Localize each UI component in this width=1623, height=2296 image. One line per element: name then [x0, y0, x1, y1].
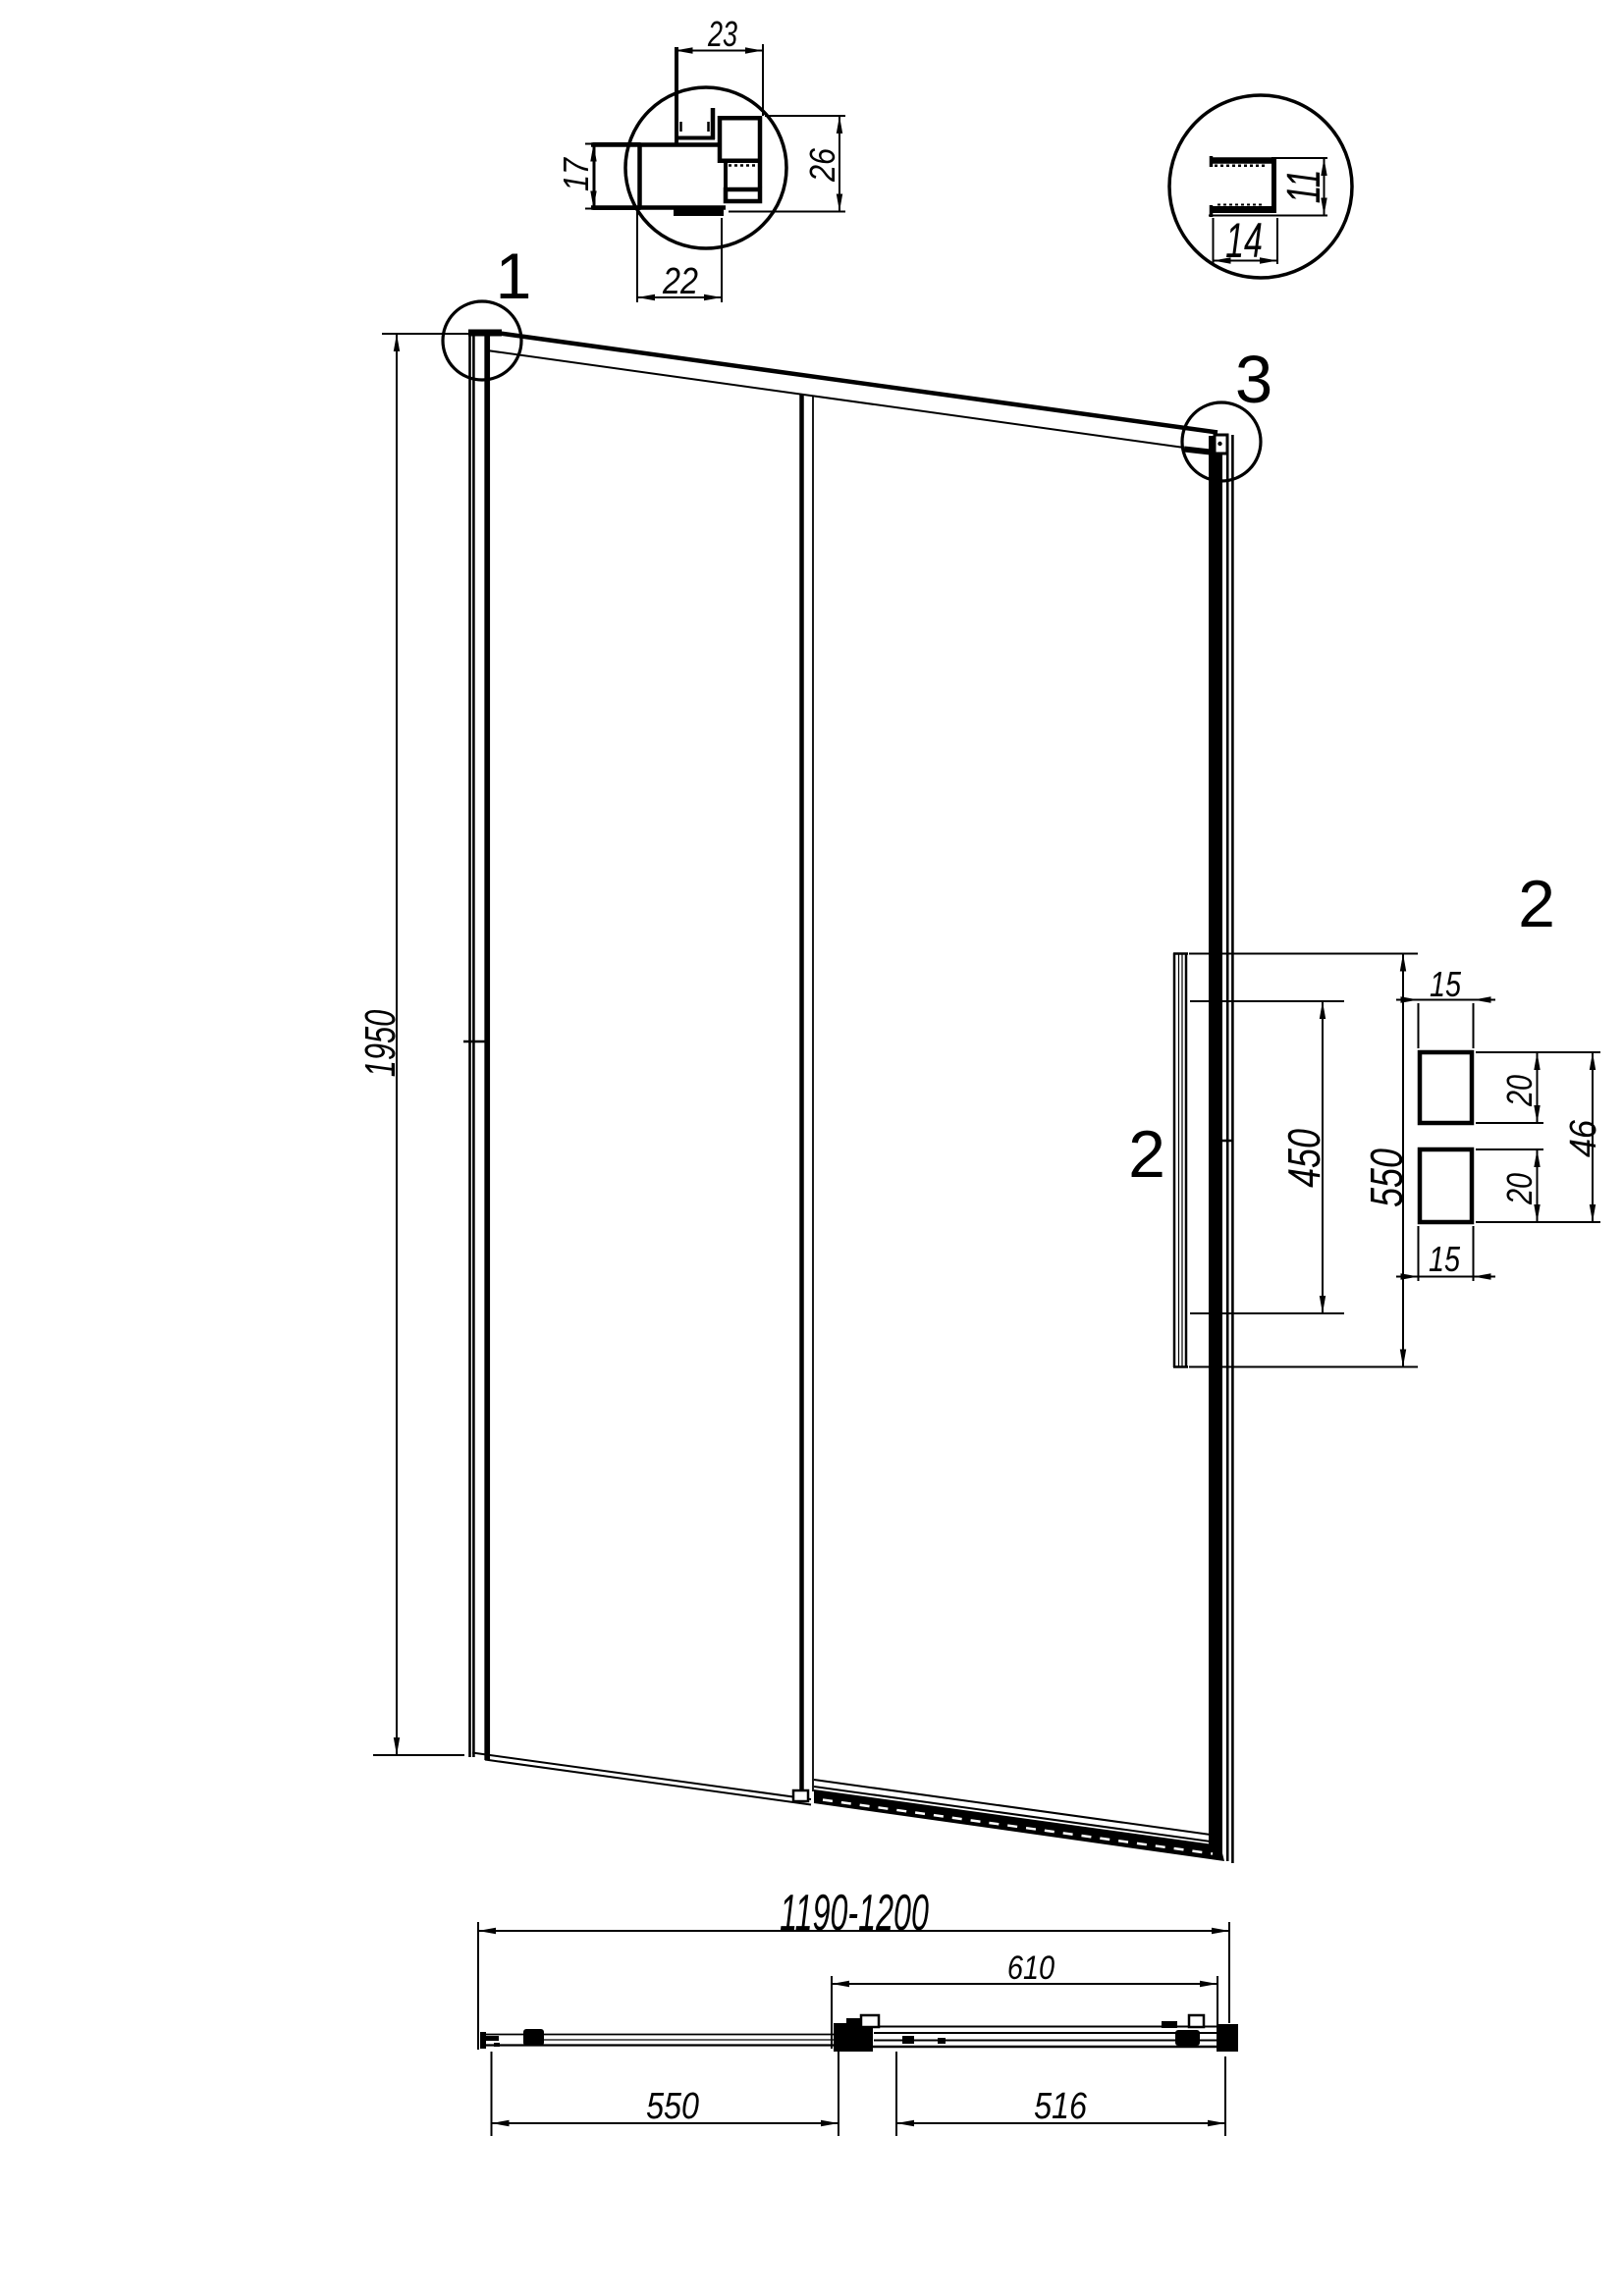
svg-text:17: 17: [558, 157, 597, 191]
svg-text:26: 26: [804, 148, 843, 183]
svg-text:1950: 1950: [357, 1010, 406, 1078]
svg-text:516: 516: [1034, 2086, 1087, 2127]
svg-text:1190-1200: 1190-1200: [780, 1885, 929, 1942]
svg-text:20: 20: [1499, 1173, 1540, 1205]
svg-text:15: 15: [1429, 1239, 1461, 1279]
svg-text:20: 20: [1499, 1075, 1540, 1107]
svg-text:550: 550: [1362, 1148, 1412, 1207]
svg-text:14: 14: [1225, 214, 1263, 269]
svg-text:2: 2: [1128, 1117, 1165, 1192]
svg-text:450: 450: [1279, 1129, 1329, 1188]
svg-text:1: 1: [496, 240, 532, 312]
svg-text:2: 2: [1518, 867, 1555, 941]
svg-text:610: 610: [1007, 1949, 1055, 1987]
svg-text:46: 46: [1561, 1119, 1603, 1157]
svg-text:11: 11: [1276, 170, 1329, 204]
svg-text:23: 23: [707, 14, 737, 54]
svg-text:3: 3: [1235, 342, 1272, 417]
svg-text:22: 22: [662, 261, 698, 302]
svg-text:15: 15: [1430, 964, 1462, 1004]
svg-text:550: 550: [646, 2086, 699, 2127]
